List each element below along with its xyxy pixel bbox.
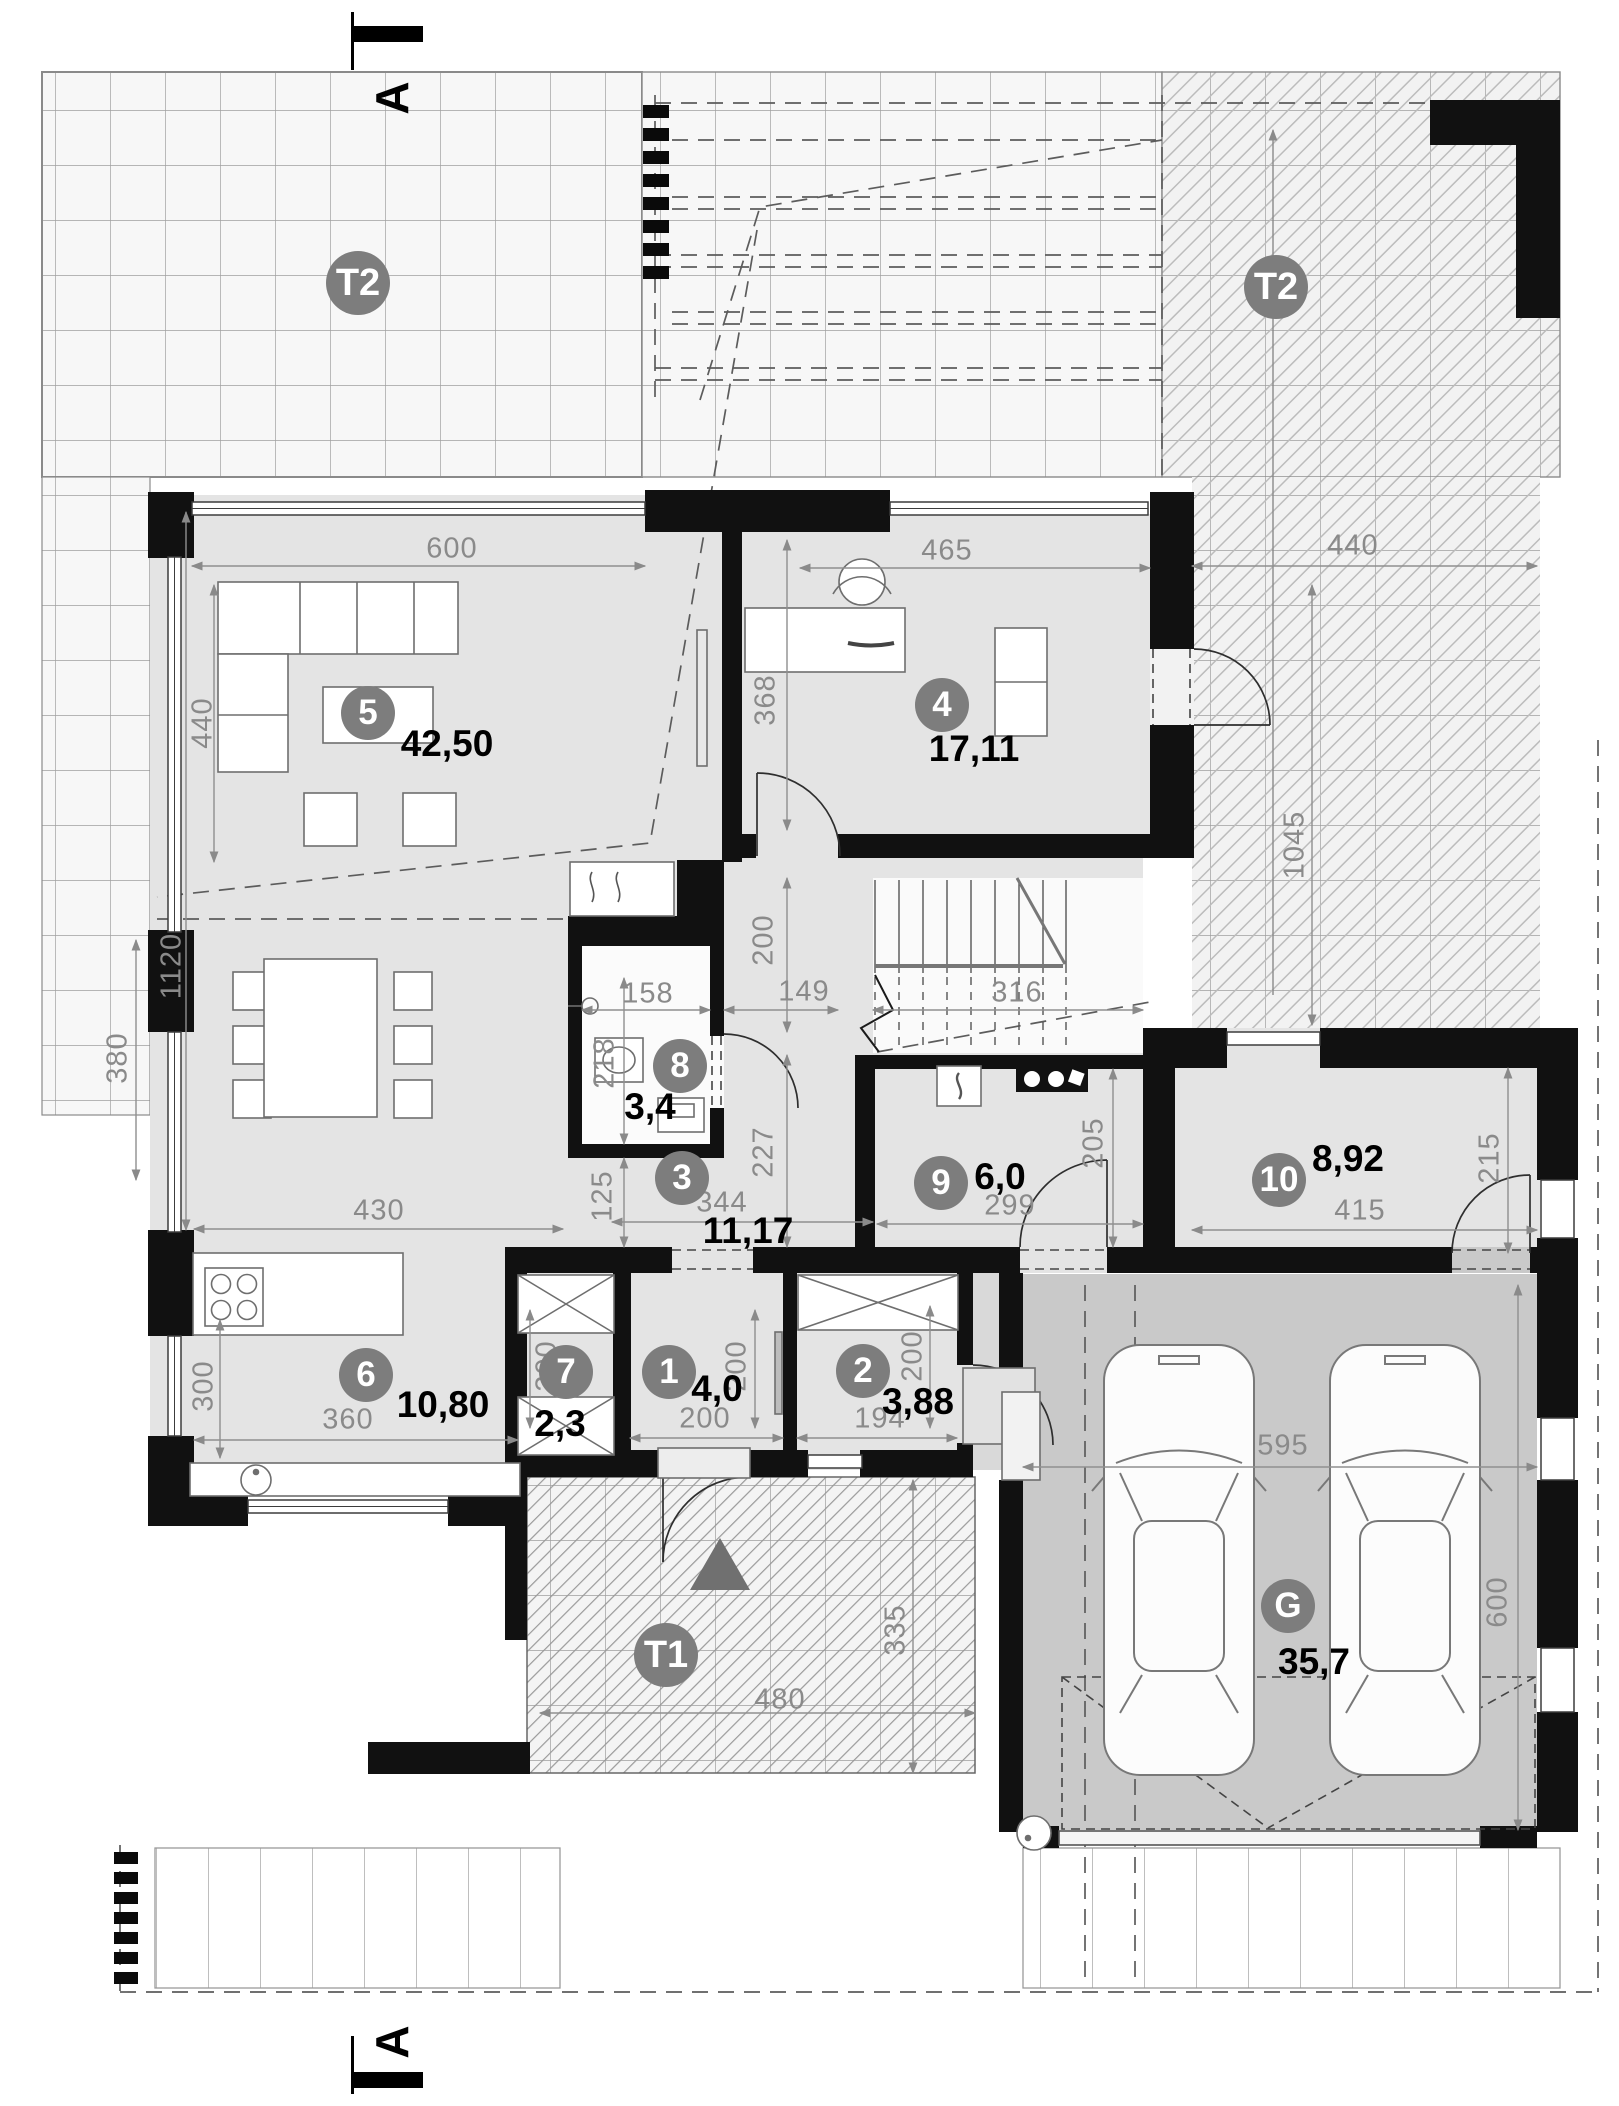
room-area-4: 17,11: [929, 728, 1020, 770]
room-area-6: 10,80: [397, 1384, 490, 1426]
dim-label: 200: [897, 1330, 930, 1381]
room-area-9: 6,0: [974, 1156, 1025, 1198]
car-right: [1318, 1345, 1492, 1775]
section-letter: A: [365, 81, 419, 114]
room-area-8: 3,4: [624, 1086, 675, 1128]
dim-label: 600: [1482, 1576, 1515, 1627]
dim-label: 316: [991, 977, 1042, 1010]
room-area-2: 3,88: [882, 1381, 954, 1423]
terrace-badge-t2-right: T2: [1244, 255, 1308, 319]
floor-plan-drawing: [0, 0, 1619, 2106]
car-left: [1092, 1345, 1266, 1775]
room-badge-7: 7: [539, 1345, 593, 1399]
room-badge-10: 10: [1252, 1153, 1306, 1207]
dim-label: 300: [188, 1360, 221, 1411]
dim-label: 430: [353, 1195, 404, 1228]
dim-label: 440: [1327, 530, 1378, 563]
dim-label: 480: [754, 1684, 805, 1717]
dim-label: 125: [587, 1170, 620, 1221]
dim-label: 215: [1474, 1132, 1507, 1183]
room-area-3: 11,17: [703, 1210, 794, 1252]
room-badge-garage: G: [1261, 1579, 1315, 1633]
room-area-1: 4,0: [691, 1368, 742, 1410]
section-letter: A: [365, 2025, 419, 2058]
dim-label: 149: [778, 976, 829, 1009]
room-badge-6: 6: [339, 1348, 393, 1402]
dim-label: 368: [750, 674, 783, 725]
dim-label: 200: [748, 914, 781, 965]
dim-label: 218: [589, 1037, 622, 1088]
dim-label: 360: [322, 1404, 373, 1437]
floor-plan-canvas: 600 440 465 440 1045 368 1120 380 158 14…: [0, 0, 1619, 2106]
dim-label: 440: [187, 697, 220, 748]
dim-label: 415: [1334, 1195, 1385, 1228]
dim-label: 335: [880, 1604, 913, 1655]
dim-label: 600: [426, 533, 477, 566]
dim-label: 1045: [1279, 811, 1312, 880]
room-area-5: 42,50: [401, 723, 494, 765]
terrace-badge-t1: T1: [634, 1623, 698, 1687]
dim-label: 205: [1078, 1117, 1111, 1168]
dim-label: 380: [102, 1032, 135, 1083]
room-badge-5: 5: [341, 686, 395, 740]
dim-label: 227: [748, 1126, 781, 1177]
room-badge-3: 3: [655, 1151, 709, 1205]
room-area-garage: 35,7: [1278, 1641, 1350, 1683]
room-badge-9: 9: [914, 1156, 968, 1210]
dim-label: 158: [622, 978, 673, 1011]
room-badge-1: 1: [642, 1345, 696, 1399]
dim-label: 1120: [156, 933, 189, 999]
room-area-10: 8,92: [1312, 1138, 1384, 1180]
room-badge-4: 4: [915, 678, 969, 732]
room-area-7: 2,3: [534, 1403, 585, 1445]
dim-label: 595: [1257, 1430, 1308, 1463]
room-badge-8: 8: [653, 1039, 707, 1093]
dim-label: 465: [921, 535, 972, 568]
terrace-badge-t2-left: T2: [326, 251, 390, 315]
